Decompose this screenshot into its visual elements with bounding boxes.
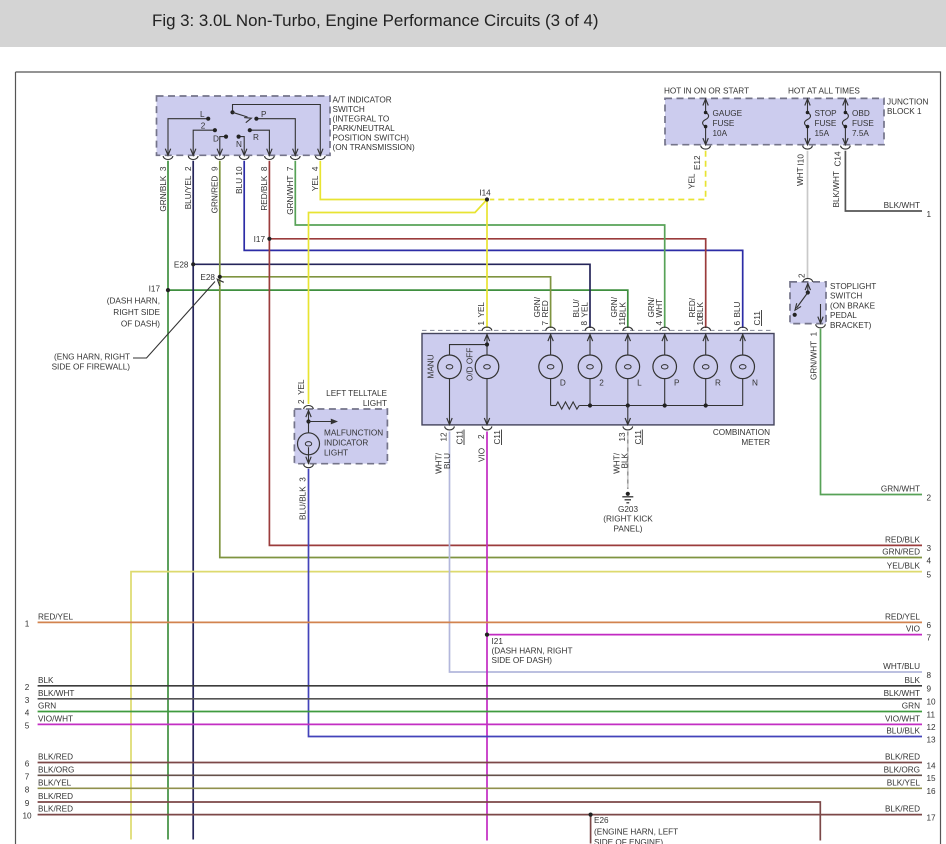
svg-text:GRN: GRN	[38, 702, 56, 711]
svg-text:BLK/WHT: BLK/WHT	[884, 201, 920, 210]
svg-text:1: 1	[927, 210, 932, 219]
svg-text:BLU 10: BLU 10	[235, 166, 244, 194]
svg-text:1: 1	[25, 619, 30, 628]
svg-text:O/D OFF: O/D OFF	[466, 348, 475, 381]
svg-text:13: 13	[927, 735, 937, 744]
svg-text:MANU: MANU	[427, 354, 436, 378]
svg-text:INDICATOR: INDICATOR	[324, 439, 368, 448]
svg-text:BLK/WHT: BLK/WHT	[832, 171, 841, 207]
svg-text:BLK/ORG: BLK/ORG	[38, 765, 74, 774]
svg-text:2 YEL: 2 YEL	[297, 379, 306, 404]
svg-text:BLK/WHT: BLK/WHT	[38, 689, 74, 698]
svg-text:PANEL): PANEL)	[614, 524, 643, 533]
svg-text:BLK/WHT: BLK/WHT	[884, 689, 920, 698]
svg-text:BLK/RED: BLK/RED	[885, 805, 920, 814]
svg-text:I14: I14	[479, 189, 491, 198]
svg-text:10A: 10A	[713, 129, 728, 138]
svg-text:E28: E28	[200, 273, 215, 282]
svg-text:6: 6	[25, 760, 30, 769]
svg-text:BLOCK 1: BLOCK 1	[887, 107, 922, 116]
svg-text:BLU: BLU	[733, 301, 742, 317]
svg-text:BLK: BLK	[905, 676, 921, 685]
svg-text:YEL 4: YEL 4	[311, 166, 320, 191]
svg-text:3: 3	[25, 696, 30, 705]
svg-text:VIO/WHT: VIO/WHT	[885, 714, 920, 723]
svg-text:6: 6	[733, 321, 742, 326]
svg-text:BLK/RED: BLK/RED	[885, 753, 920, 762]
svg-text:(ON BRAKE: (ON BRAKE	[830, 301, 876, 310]
svg-text:12: 12	[440, 432, 449, 442]
svg-text:12: 12	[927, 723, 937, 732]
svg-text:SIDE OF FIREWALL): SIDE OF FIREWALL)	[52, 363, 131, 372]
svg-text:2: 2	[477, 434, 486, 439]
svg-text:GRN/WHT 1: GRN/WHT 1	[810, 331, 819, 380]
svg-text:2: 2	[201, 122, 206, 131]
svg-text:16: 16	[927, 787, 937, 796]
svg-text:7.5A: 7.5A	[852, 129, 869, 138]
svg-text:(DASH HARN, RIGHT: (DASH HARN, RIGHT	[492, 647, 573, 656]
svg-text:BRACKET): BRACKET)	[830, 321, 872, 330]
svg-text:R: R	[253, 133, 259, 142]
svg-text:5: 5	[25, 721, 30, 730]
svg-text:RED: RED	[541, 300, 550, 317]
svg-text:N: N	[236, 140, 242, 149]
svg-text:9: 9	[927, 685, 932, 694]
svg-text:E26: E26	[594, 816, 609, 825]
svg-text:PARK/NEUTRAL: PARK/NEUTRAL	[333, 124, 396, 133]
svg-text:BLK: BLK	[620, 452, 629, 468]
svg-text:BLK/YEL: BLK/YEL	[38, 778, 72, 787]
svg-text:VIO/WHT: VIO/WHT	[38, 714, 73, 723]
svg-text:8: 8	[580, 321, 589, 326]
svg-text:R: R	[715, 379, 721, 388]
svg-text:WHT: WHT	[796, 167, 805, 186]
svg-text:9: 9	[25, 799, 30, 808]
svg-text:LIGHT: LIGHT	[324, 449, 348, 458]
svg-text:7: 7	[25, 772, 30, 781]
svg-text:14: 14	[927, 761, 937, 770]
svg-text:E12: E12	[693, 155, 702, 170]
svg-text:2: 2	[798, 273, 807, 278]
svg-text:P: P	[261, 110, 267, 119]
svg-text:GRN/WHT 7: GRN/WHT 7	[286, 166, 295, 215]
svg-text:1: 1	[477, 321, 486, 326]
svg-text:GRN/RED: GRN/RED	[882, 548, 920, 557]
svg-text:Fig 3: 3.0L Non-Turbo, Engine: Fig 3: 3.0L Non-Turbo, Engine Performanc…	[152, 11, 599, 30]
svg-text:E28: E28	[174, 261, 189, 270]
svg-text:BLK/RED: BLK/RED	[38, 753, 73, 762]
svg-text:L: L	[637, 379, 642, 388]
svg-text:G203: G203	[618, 505, 638, 514]
svg-text:8: 8	[927, 671, 932, 680]
svg-text:3: 3	[927, 544, 932, 553]
svg-text:OF DASH): OF DASH)	[121, 320, 160, 329]
svg-text:BLK: BLK	[696, 301, 705, 317]
svg-text:BLU/BLK 3: BLU/BLK 3	[299, 477, 308, 520]
svg-text:VIO: VIO	[478, 448, 487, 462]
svg-text:4: 4	[927, 556, 932, 565]
svg-text:D: D	[213, 135, 219, 144]
svg-text:A/T INDICATOR: A/T INDICATOR	[333, 96, 392, 105]
svg-text:8: 8	[25, 785, 30, 794]
svg-text:15: 15	[927, 774, 937, 783]
svg-text:STOP: STOP	[815, 109, 838, 118]
svg-text:10: 10	[927, 698, 937, 707]
svg-text:(ENGINE HARN, LEFT: (ENGINE HARN, LEFT	[594, 828, 678, 837]
svg-text:POSITION SWITCH): POSITION SWITCH)	[333, 134, 410, 143]
svg-text:P: P	[674, 379, 680, 388]
svg-text:FUSE: FUSE	[815, 119, 837, 128]
svg-text:4: 4	[25, 709, 30, 718]
svg-text:(INTEGRAL TO: (INTEGRAL TO	[333, 115, 390, 124]
svg-text:BLK/RED: BLK/RED	[38, 805, 73, 814]
svg-text:6: 6	[927, 621, 932, 630]
svg-text:YEL: YEL	[477, 302, 486, 318]
svg-text:BLK/YEL: BLK/YEL	[887, 778, 921, 787]
svg-text:GRN/BLK 3: GRN/BLK 3	[159, 166, 168, 211]
svg-text:YEL: YEL	[581, 302, 590, 318]
svg-text:COMBINATION: COMBINATION	[713, 428, 770, 437]
svg-text:(ENG HARN, RIGHT: (ENG HARN, RIGHT	[54, 353, 130, 362]
svg-text:SIDE OF DASH): SIDE OF DASH)	[492, 656, 553, 665]
svg-text:SIDE OF ENGINE): SIDE OF ENGINE)	[594, 838, 663, 844]
svg-text:I17: I17	[254, 235, 266, 244]
svg-text:I17: I17	[149, 285, 161, 294]
svg-text:C11: C11	[753, 311, 762, 326]
svg-text:L: L	[200, 110, 205, 119]
svg-text:C14: C14	[834, 151, 843, 166]
svg-text:2: 2	[927, 493, 932, 502]
svg-text:BLU/BLK: BLU/BLK	[886, 727, 920, 736]
svg-text:WHT/BLU: WHT/BLU	[883, 662, 920, 671]
svg-text:YEL/BLK: YEL/BLK	[887, 562, 921, 571]
svg-text:BLU/YEL 2: BLU/YEL 2	[184, 166, 193, 209]
svg-text:FUSE: FUSE	[852, 119, 874, 128]
svg-text:C11: C11	[456, 430, 465, 445]
svg-text:4: 4	[655, 321, 664, 326]
svg-text:7: 7	[927, 633, 932, 642]
svg-text:YEL: YEL	[688, 173, 697, 189]
svg-text:5: 5	[927, 570, 932, 579]
svg-text:SWITCH: SWITCH	[830, 292, 862, 301]
svg-text:I10: I10	[797, 154, 806, 166]
svg-text:7: 7	[541, 321, 550, 326]
svg-text:JUNCTION: JUNCTION	[887, 98, 928, 107]
svg-text:MALFUNCTION: MALFUNCTION	[324, 429, 383, 438]
svg-text:GRN: GRN	[902, 702, 920, 711]
svg-text:(ON TRANSMISSION): (ON TRANSMISSION)	[333, 143, 415, 152]
svg-text:(RIGHT KICK: (RIGHT KICK	[603, 515, 653, 524]
svg-text:17: 17	[927, 813, 937, 822]
svg-text:SWITCH: SWITCH	[333, 105, 365, 114]
svg-text:N: N	[752, 379, 758, 388]
svg-text:GAUGE: GAUGE	[713, 109, 743, 118]
svg-text:15A: 15A	[815, 129, 830, 138]
svg-text:BLK/ORG: BLK/ORG	[884, 765, 920, 774]
svg-text:C11: C11	[634, 430, 643, 445]
svg-text:(DASH HARN,: (DASH HARN,	[107, 297, 160, 306]
svg-text:LEFT TELLTALE: LEFT TELLTALE	[326, 389, 387, 398]
svg-text:RED/YEL: RED/YEL	[38, 612, 73, 621]
svg-text:RIGHT SIDE: RIGHT SIDE	[113, 308, 160, 317]
svg-text:FUSE: FUSE	[713, 119, 735, 128]
svg-text:GRN/WHT: GRN/WHT	[881, 485, 920, 494]
svg-text:RED/BLK 8: RED/BLK 8	[260, 166, 269, 211]
svg-text:I21: I21	[492, 637, 504, 646]
svg-text:GRN/RED 9: GRN/RED 9	[211, 166, 220, 213]
svg-text:RED/BLK: RED/BLK	[885, 535, 921, 544]
svg-text:2: 2	[599, 379, 604, 388]
svg-text:BLK: BLK	[38, 676, 54, 685]
svg-text:2: 2	[25, 683, 30, 692]
svg-text:C11: C11	[493, 430, 502, 445]
svg-text:METER: METER	[741, 438, 770, 447]
svg-text:BLK: BLK	[618, 301, 627, 317]
svg-text:VIO: VIO	[906, 625, 920, 634]
svg-text:D: D	[560, 379, 566, 388]
svg-text:LIGHT: LIGHT	[363, 399, 387, 408]
svg-text:OBD: OBD	[852, 109, 870, 118]
svg-text:BLK/RED: BLK/RED	[38, 792, 73, 801]
svg-text:WHT: WHT	[655, 299, 664, 318]
svg-text:11: 11	[927, 710, 936, 719]
svg-text:PEDAL: PEDAL	[830, 311, 857, 320]
svg-text:13: 13	[618, 432, 627, 442]
svg-text:BLU: BLU	[443, 453, 452, 469]
svg-text:HOT IN ON OR START: HOT IN ON OR START	[664, 87, 749, 96]
svg-text:STOPLIGHT: STOPLIGHT	[830, 282, 876, 291]
svg-text:RED/YEL: RED/YEL	[885, 612, 920, 621]
svg-text:10: 10	[22, 812, 32, 821]
svg-text:HOT AT ALL TIMES: HOT AT ALL TIMES	[788, 87, 860, 96]
